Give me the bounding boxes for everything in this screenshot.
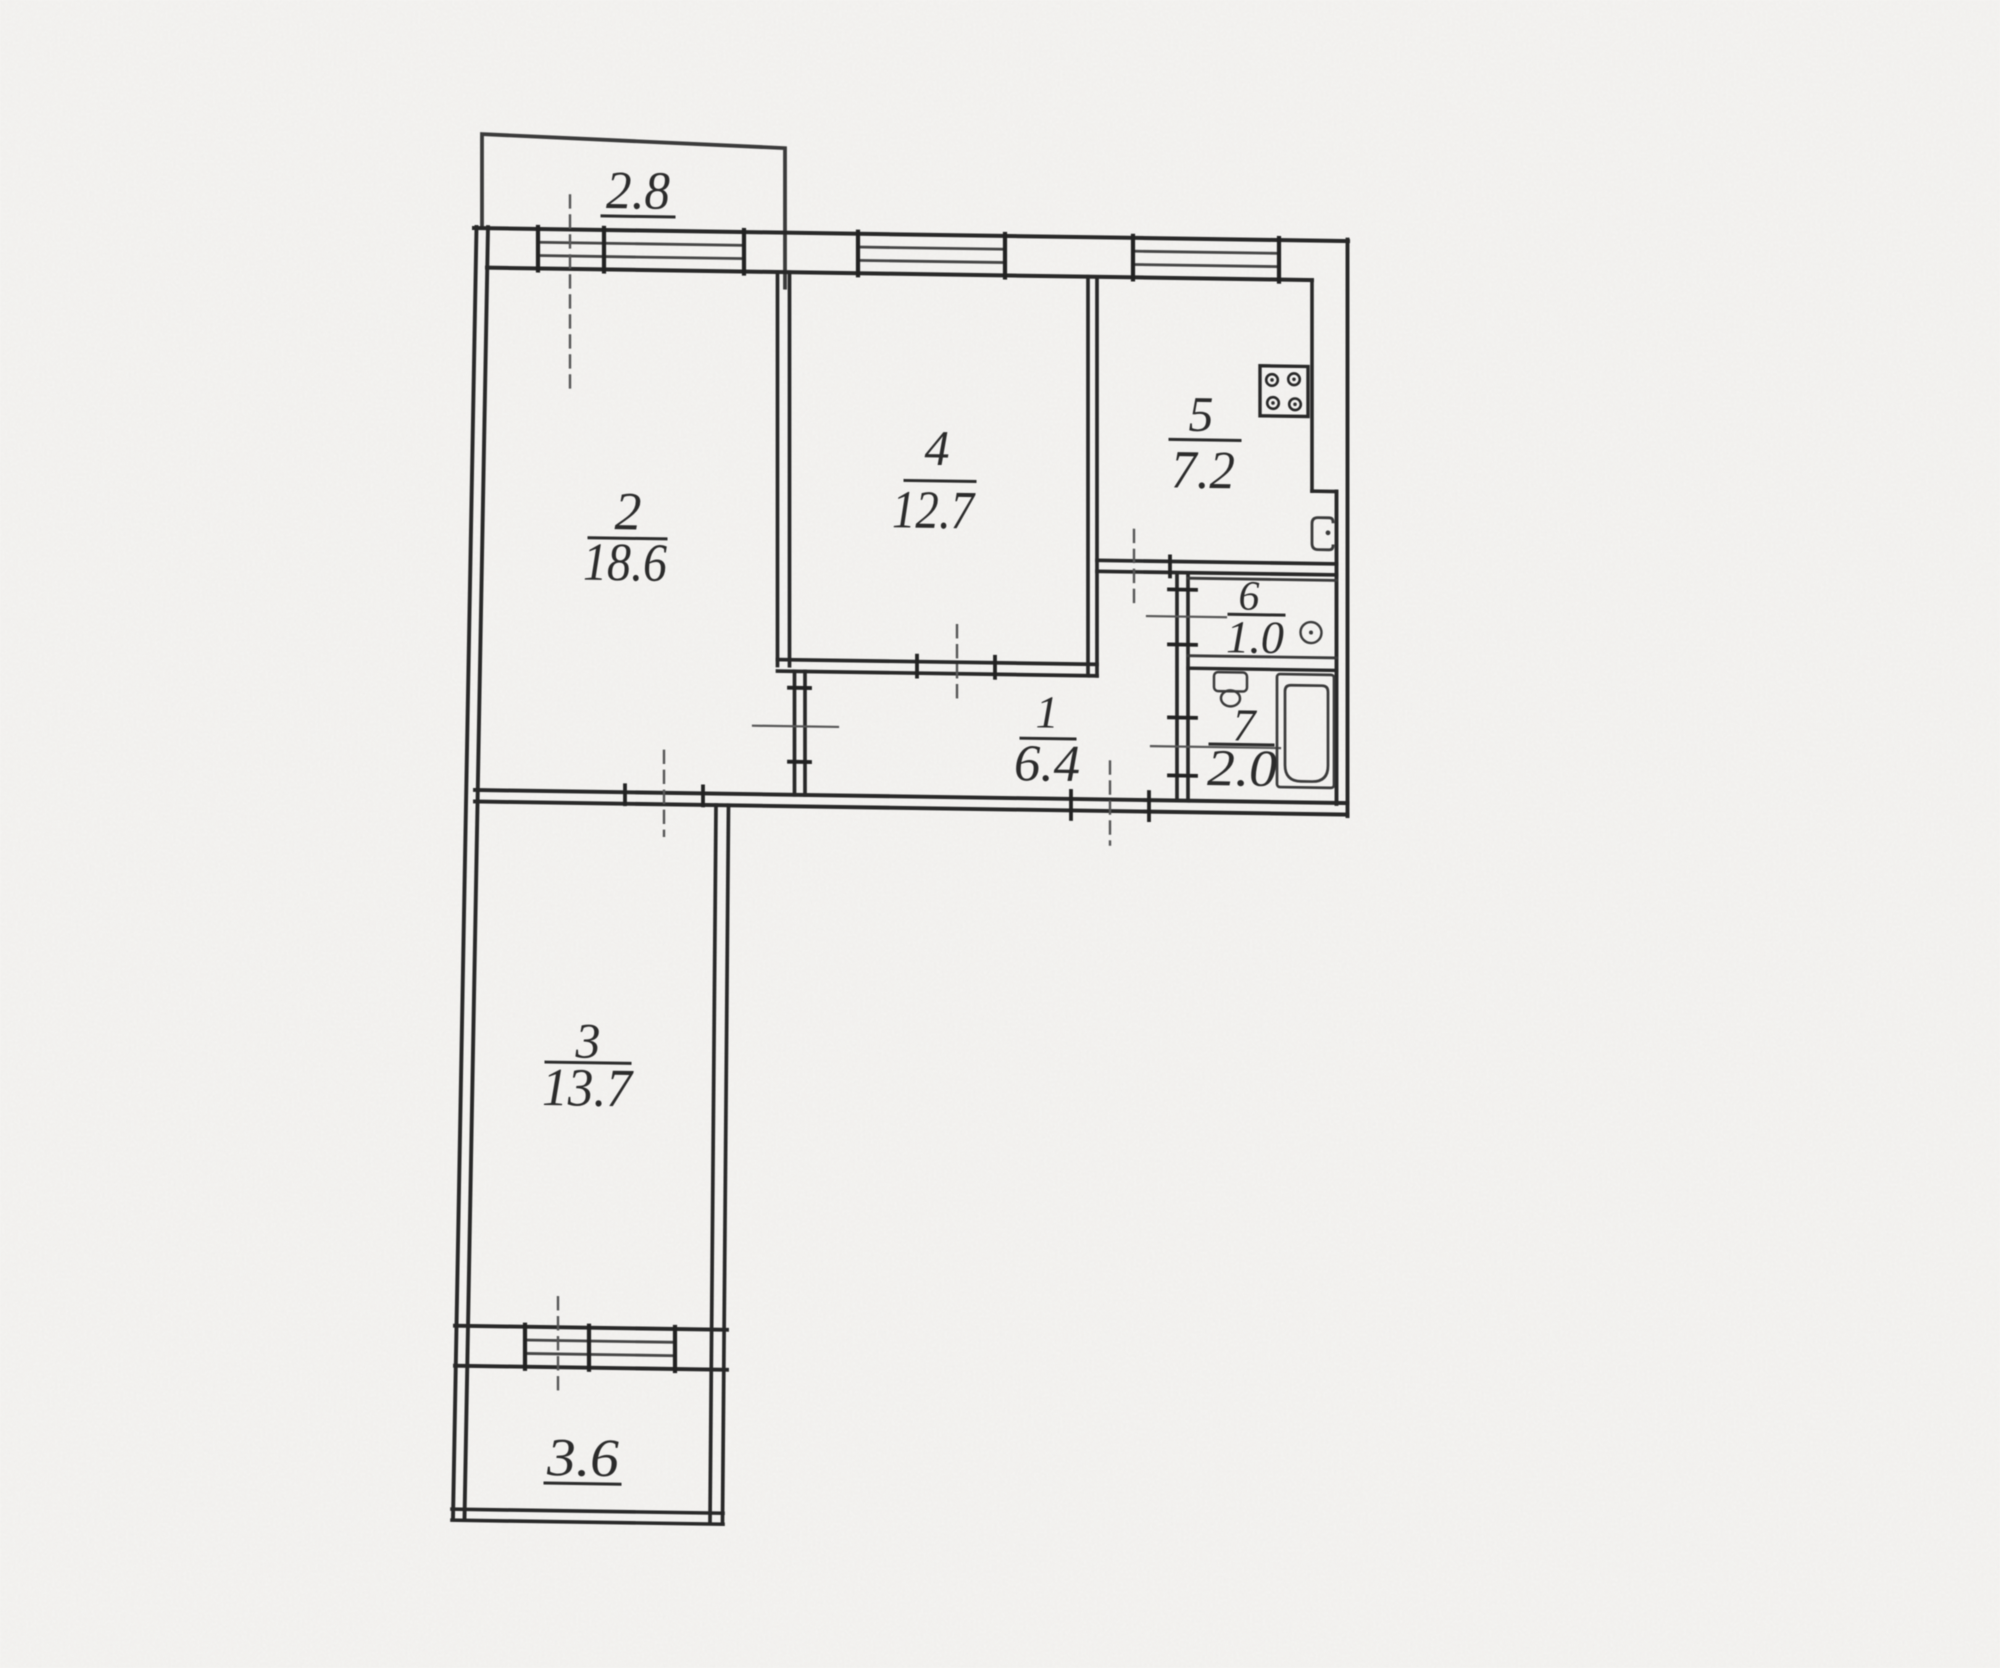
svg-text:1: 1 xyxy=(1036,686,1059,737)
svg-text:2.8: 2.8 xyxy=(606,160,670,221)
svg-text:7.2: 7.2 xyxy=(1171,439,1235,500)
svg-text:1.0: 1.0 xyxy=(1226,611,1284,663)
svg-text:4: 4 xyxy=(925,420,950,476)
svg-text:18.6: 18.6 xyxy=(583,532,667,593)
svg-text:3.6: 3.6 xyxy=(546,1427,619,1488)
svg-text:13.7: 13.7 xyxy=(542,1057,634,1118)
svg-text:6.4: 6.4 xyxy=(1014,735,1080,793)
svg-text:5: 5 xyxy=(1189,386,1214,442)
svg-text:12.7: 12.7 xyxy=(892,479,976,540)
svg-text:2.0: 2.0 xyxy=(1207,740,1277,798)
